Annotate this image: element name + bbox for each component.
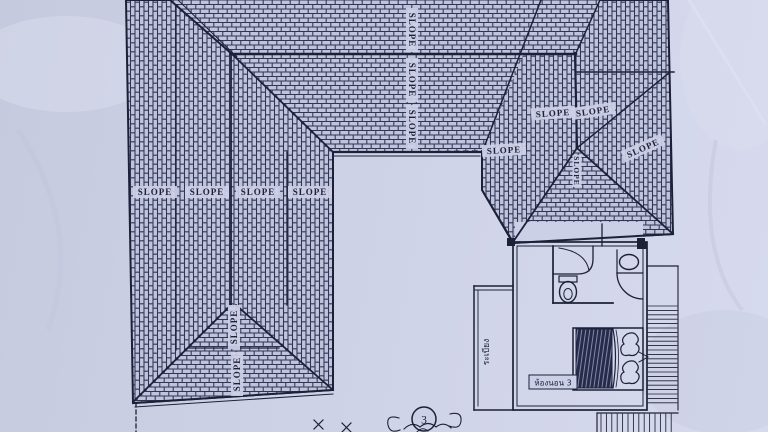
site-annotations: 3 (136, 403, 461, 432)
svg-text:SLOPE: SLOPE (293, 187, 328, 197)
slope-label: SLOPE (185, 186, 229, 198)
bedroom-label: ห้องนอน 3 (534, 379, 571, 388)
shower-stall (553, 246, 593, 274)
toilet-bowl (564, 289, 572, 300)
svg-text:SLOPE: SLOPE (229, 310, 239, 345)
bedroom3-floor-plan: ห้องนอน 3 ระเบียง (474, 242, 678, 432)
terrace-label: ระเบียง (481, 339, 492, 366)
blanket-fold (616, 330, 619, 387)
stair-treads (601, 414, 671, 432)
sink-basin (620, 255, 639, 270)
svg-text:SLOPE: SLOPE (407, 13, 417, 48)
door-swing-arc (617, 273, 643, 299)
pillow (621, 333, 639, 356)
svg-text:SLOPE: SLOPE (190, 187, 225, 197)
svg-text:SLOPE: SLOPE (572, 156, 581, 186)
slope-label: SLOPE (133, 186, 177, 198)
slope-label: SLOPE (228, 305, 240, 349)
svg-text:SLOPE: SLOPE (407, 63, 417, 98)
svg-text:SLOPE: SLOPE (138, 187, 173, 197)
svg-text:SLOPE: SLOPE (232, 357, 242, 392)
slope-label: SLOPE (572, 155, 582, 187)
roof-plan-scan: SLOPESLOPESLOPESLOPESLOPESLOPESLOPESLOPE… (0, 0, 768, 432)
wall-column (637, 242, 647, 249)
blanket-fold (613, 329, 616, 388)
slope-label: SLOPE (231, 352, 243, 396)
pillow (621, 361, 639, 384)
svg-text:SLOPE: SLOPE (241, 187, 276, 197)
bed-blanket (576, 329, 612, 388)
roof-hatch-horizontal-panel (170, 0, 600, 55)
slope-label: SLOPE (406, 58, 418, 102)
plant-marks (314, 420, 351, 432)
beam-strip (515, 222, 643, 241)
svg-text:SLOPE: SLOPE (487, 144, 522, 156)
slope-label: SLOPE (236, 186, 280, 198)
shower-stall (559, 248, 589, 271)
slope-label: SLOPE (406, 105, 418, 149)
slope-label: SLOPE (482, 143, 527, 157)
slope-label: SLOPE (288, 186, 332, 198)
svg-text:SLOPE: SLOPE (407, 110, 417, 145)
scanned-page: SLOPESLOPESLOPESLOPESLOPESLOPESLOPESLOPE… (0, 0, 768, 432)
slope-label: SLOPE (406, 8, 418, 52)
